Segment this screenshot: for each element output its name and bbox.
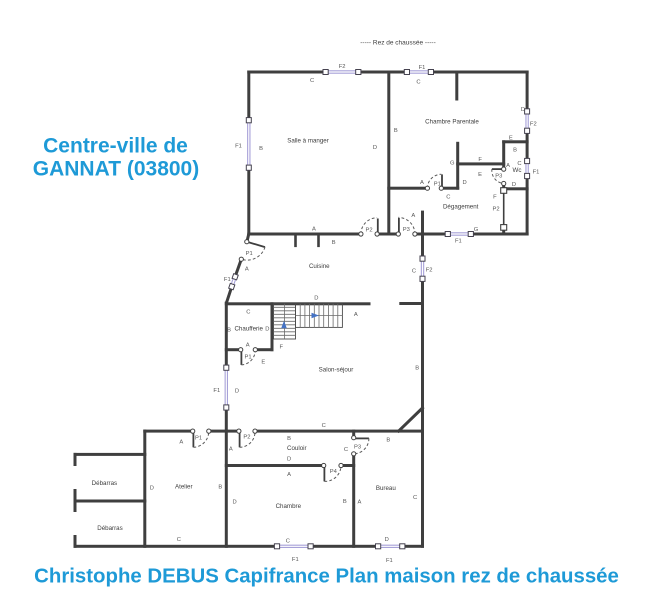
svg-text:B: B <box>227 328 231 334</box>
svg-text:Wc: Wc <box>513 167 522 174</box>
svg-text:C: C <box>344 447 348 453</box>
svg-text:F1: F1 <box>224 277 231 283</box>
svg-text:A: A <box>246 343 250 349</box>
svg-text:Débarras: Débarras <box>92 480 117 487</box>
svg-text:D: D <box>150 486 154 492</box>
svg-text:C: C <box>413 495 417 501</box>
svg-text:Dégagement: Dégagement <box>443 204 479 211</box>
svg-text:B: B <box>386 438 390 444</box>
svg-text:D: D <box>314 295 318 301</box>
svg-text:D: D <box>521 107 525 113</box>
svg-text:A: A <box>354 312 358 318</box>
svg-text:B: B <box>287 436 291 442</box>
svg-text:F: F <box>280 345 284 351</box>
svg-text:P2: P2 <box>243 435 250 441</box>
svg-text:A: A <box>287 472 291 478</box>
svg-text:C: C <box>446 194 450 200</box>
svg-text:B: B <box>394 128 398 134</box>
svg-text:C: C <box>246 310 250 316</box>
svg-text:Bureau: Bureau <box>376 485 397 492</box>
svg-text:C: C <box>286 539 290 545</box>
svg-text:Salon-séjour: Salon-séjour <box>319 367 354 374</box>
svg-text:A: A <box>420 180 424 186</box>
svg-text:C: C <box>322 423 326 429</box>
svg-text:P2: P2 <box>365 227 372 233</box>
svg-text:B: B <box>259 146 263 152</box>
svg-text:E: E <box>261 360 265 366</box>
svg-text:P1: P1 <box>246 251 253 257</box>
svg-text:P1: P1 <box>195 435 202 441</box>
svg-text:F1: F1 <box>292 557 299 563</box>
svg-text:Cuisine: Cuisine <box>309 263 330 270</box>
svg-text:P3: P3 <box>495 174 502 180</box>
svg-text:F1: F1 <box>235 143 242 149</box>
svg-text:A: A <box>411 213 415 219</box>
svg-text:D: D <box>265 327 269 333</box>
svg-text:C: C <box>517 161 521 167</box>
svg-text:P1: P1 <box>244 355 251 361</box>
svg-text:D: D <box>287 457 291 463</box>
svg-text:P2: P2 <box>492 207 499 213</box>
svg-text:A: A <box>179 439 183 445</box>
svg-text:F2: F2 <box>530 122 537 128</box>
svg-text:B: B <box>343 499 347 505</box>
svg-text:A: A <box>357 500 361 506</box>
svg-text:F1: F1 <box>213 388 220 394</box>
svg-text:P4: P4 <box>330 469 338 475</box>
svg-text:G: G <box>450 160 455 166</box>
svg-text:F2: F2 <box>426 268 433 274</box>
svg-text:Débarras: Débarras <box>97 525 122 532</box>
svg-text:F1: F1 <box>386 558 393 564</box>
svg-text:Christophe DEBUS Capifrance Pl: Christophe DEBUS Capifrance Plan maison … <box>34 566 619 588</box>
svg-text:B: B <box>513 148 517 154</box>
svg-text:C: C <box>177 537 181 543</box>
svg-text:F1: F1 <box>455 238 462 244</box>
svg-text:A: A <box>245 266 249 272</box>
svg-text:----- Rez de chaussée -----: ----- Rez de chaussée ----- <box>360 40 435 47</box>
svg-text:B: B <box>218 485 222 491</box>
svg-text:D: D <box>385 537 389 543</box>
svg-text:A: A <box>229 447 233 453</box>
svg-text:A: A <box>506 163 510 169</box>
svg-text:GANNAT (03800): GANNAT (03800) <box>33 158 199 181</box>
svg-text:D: D <box>512 182 516 188</box>
svg-text:A: A <box>312 226 316 232</box>
svg-text:F2: F2 <box>339 64 346 70</box>
svg-text:F1: F1 <box>419 65 426 71</box>
svg-text:C: C <box>416 79 420 85</box>
svg-text:Chambre Parentale: Chambre Parentale <box>425 119 479 126</box>
svg-text:D: D <box>233 500 237 506</box>
svg-text:D: D <box>235 388 239 394</box>
svg-text:C: C <box>310 78 314 84</box>
svg-text:E: E <box>478 172 482 178</box>
svg-text:P1: P1 <box>434 182 441 188</box>
svg-text:Chaufferie: Chaufferie <box>234 326 263 333</box>
svg-text:C: C <box>412 268 416 274</box>
svg-text:D: D <box>373 145 377 151</box>
svg-text:F1: F1 <box>533 169 540 175</box>
svg-text:Centre-ville de: Centre-ville de <box>43 135 188 158</box>
svg-text:Couloir: Couloir <box>287 445 307 452</box>
svg-text:F: F <box>478 157 482 163</box>
svg-text:G: G <box>474 227 479 233</box>
svg-text:B: B <box>332 240 336 246</box>
svg-text:Atelier: Atelier <box>175 484 193 491</box>
svg-text:Salle à manger: Salle à manger <box>287 138 329 145</box>
svg-text:F: F <box>493 195 497 201</box>
svg-text:P3: P3 <box>403 227 410 233</box>
svg-text:E: E <box>509 136 513 142</box>
svg-text:Chambre: Chambre <box>276 503 302 510</box>
svg-text:D: D <box>463 180 467 186</box>
svg-text:P3: P3 <box>354 444 361 450</box>
svg-text:B: B <box>415 366 419 372</box>
